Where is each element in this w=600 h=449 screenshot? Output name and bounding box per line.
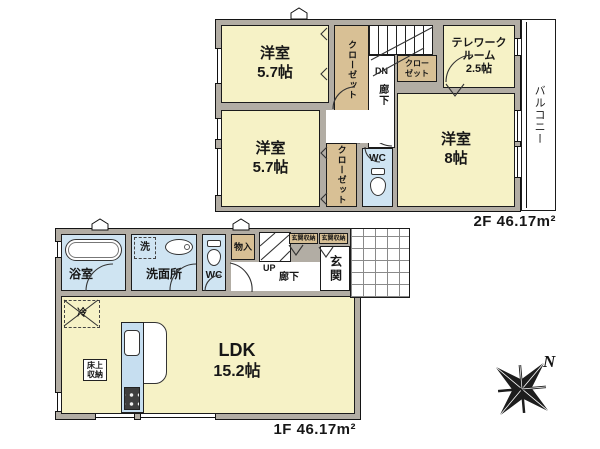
- hall-mid-2f: [326, 110, 393, 143]
- closet-mid: クローゼット: [326, 143, 357, 207]
- balcony-label: バルコニー: [532, 85, 545, 145]
- washer-label: 洗: [140, 242, 150, 255]
- ldk: LDK 15.2帖 冷 床上 収納: [61, 296, 355, 414]
- toilet-bowl-icon-2f: [370, 177, 386, 196]
- room-west-top: 洋室 5.7帖: [221, 25, 329, 103]
- kitchen-island-counter: [141, 322, 167, 384]
- closet-north-label: クローゼット: [347, 40, 357, 100]
- room-east: 洋室 8帖: [397, 93, 515, 207]
- wc-2f: WC: [362, 148, 393, 207]
- telework-name-line2: ルーム: [463, 50, 496, 63]
- entrance: 玄関: [320, 246, 350, 291]
- telework-room: テレワーク ルーム 2.5帖: [443, 25, 515, 88]
- washer-box: 洗: [134, 237, 156, 259]
- closet-stair-line2: ゼット: [405, 69, 429, 78]
- kitchen-sink-icon: [124, 330, 140, 356]
- sink-icon: [165, 239, 193, 255]
- stairs-2f: [368, 25, 433, 55]
- window-1f-left-2: [55, 392, 61, 412]
- room-west-top-name: 洋室: [260, 45, 290, 64]
- toilet-tank-icon-2f: [371, 168, 385, 175]
- floor1-area-label: 1F 46.17m²: [230, 421, 356, 438]
- bathtub-inner-line: [68, 242, 119, 258]
- window-2f-right-2: [515, 110, 521, 142]
- window-2f-right-3: [515, 146, 521, 178]
- ldk-size: 15.2帖: [172, 362, 302, 382]
- washroom: 洗 洗面所: [131, 234, 197, 291]
- room-west-bottom-size: 5.7帖: [253, 159, 289, 178]
- window-2f-left-2: [215, 118, 221, 140]
- window-1f-left-1: [55, 241, 61, 258]
- closet-stair-line1: クロー: [405, 59, 429, 68]
- window-2f-right-1: [515, 38, 521, 56]
- telework-size: 2.5帖: [466, 63, 492, 76]
- hallway-1f-label: 廊下: [279, 272, 299, 285]
- floor-storage-box: 床上 収納: [83, 359, 107, 381]
- telework-name-line1: テレワーク: [452, 37, 507, 50]
- bathroom: 浴室: [61, 234, 126, 291]
- ldk-name: LDK: [172, 339, 302, 362]
- stove-icon: [124, 387, 140, 410]
- closet-north: クローゼット: [334, 25, 370, 115]
- entrance-label: 玄関: [328, 255, 343, 283]
- compass-north-label: N: [542, 352, 556, 371]
- entrance-storage-a: 玄関収納: [289, 233, 318, 244]
- window-2f-left-1: [215, 48, 221, 84]
- room-west-bottom-name: 洋室: [255, 140, 285, 159]
- floor2-area-label: 2F 46.17m²: [420, 213, 556, 230]
- room-east-name: 洋室: [441, 131, 471, 150]
- closet-mid-label: クローゼット: [336, 145, 346, 205]
- room-east-size: 8帖: [444, 150, 467, 169]
- wc-1f: WC: [202, 234, 226, 291]
- entrance-storage-b: 玄関収納: [319, 233, 348, 244]
- washroom-label: 洗面所: [146, 267, 182, 282]
- balcony: バルコニー: [521, 19, 556, 211]
- toilet-bowl-icon-1f: [207, 249, 221, 266]
- bathroom-label: 浴室: [69, 267, 93, 282]
- closet-stair: クロー ゼット: [397, 55, 437, 82]
- up-label: UP: [263, 263, 276, 273]
- vent-icon-2f-top: [291, 8, 307, 19]
- floor-storage-line2: 収納: [87, 370, 103, 379]
- window-1f-bottom-1: [95, 414, 135, 420]
- hall-1f: UP 廊下: [231, 262, 320, 291]
- floor-storage-line1: 床上: [87, 361, 103, 370]
- toilet-tank-icon-1f: [207, 240, 221, 247]
- hallway-2f-label: 廊下: [375, 84, 388, 106]
- bathtub-icon: [65, 239, 122, 261]
- wc-1f-label: WC: [206, 270, 223, 283]
- entrance-porch-tiles: [350, 228, 410, 298]
- storage-monoire-label: 物入: [234, 242, 252, 252]
- compass-icon: [476, 343, 569, 436]
- room-west-top-size: 5.7帖: [257, 64, 293, 83]
- kitchen-counter: [121, 322, 144, 413]
- room-west-bottom: 洋室 5.7帖: [221, 110, 320, 207]
- fridge-label: 冷: [77, 308, 87, 321]
- window-2f-left-3: [215, 148, 221, 196]
- balcony-rail-line: [526, 22, 527, 208]
- wc-2f-label: WC: [369, 153, 386, 166]
- stairs-1f: [259, 232, 291, 262]
- dn-label: DN: [375, 66, 388, 76]
- sink-faucet-icon: [184, 244, 190, 250]
- fridge-box: 冷: [64, 300, 100, 328]
- ldk-label-group: LDK 15.2帖: [172, 339, 302, 382]
- entrance-storage-b-label: 玄関収納: [321, 236, 345, 242]
- floor-plan: バルコニー 洋室 5.7帖 クローゼット DN 廊下 クロー ゼット テレワーク…: [0, 0, 600, 449]
- storage-monoire: 物入: [231, 234, 255, 260]
- entrance-storage-a-label: 玄関収納: [291, 236, 315, 242]
- window-1f-bottom-2: [140, 414, 216, 420]
